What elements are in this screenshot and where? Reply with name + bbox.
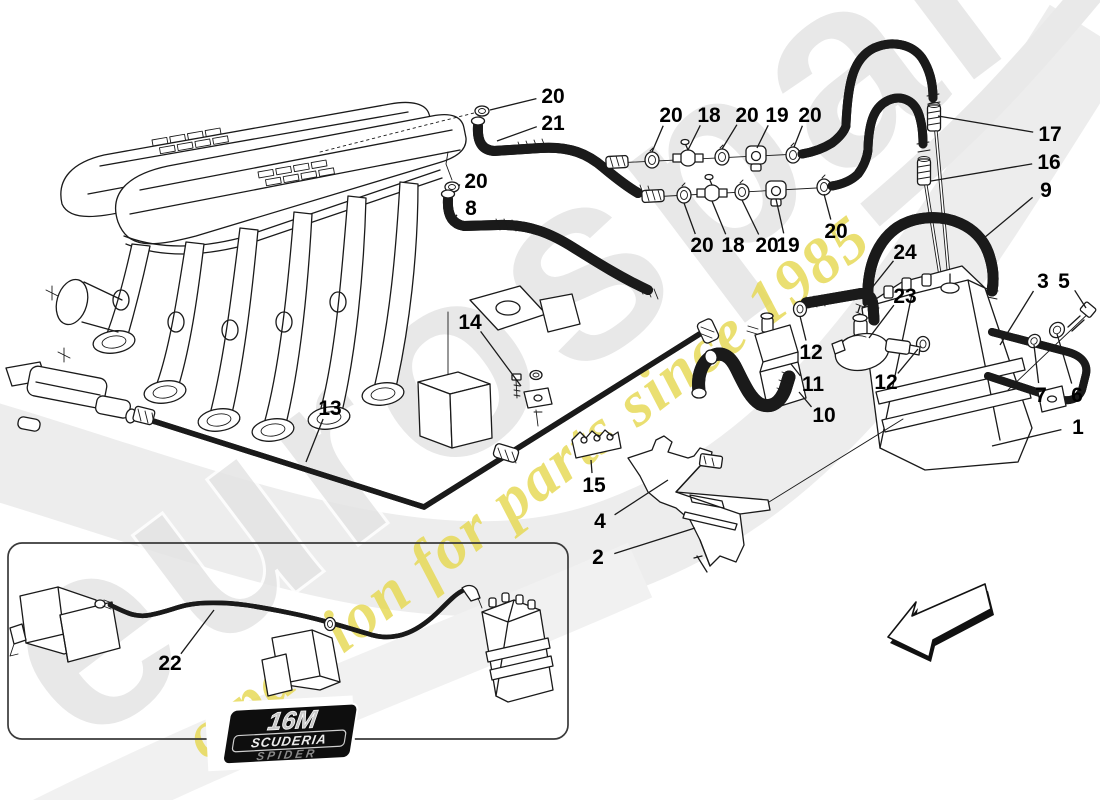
callout-24: 24 xyxy=(893,241,917,264)
callout-12: 12 xyxy=(799,341,822,364)
callout-17: 17 xyxy=(1038,123,1061,146)
actuator-assembly xyxy=(6,362,155,432)
callout-20: 20 xyxy=(541,85,564,108)
leader-line-5 xyxy=(1075,290,1086,308)
callout-18: 18 xyxy=(721,234,745,257)
callout-19: 19 xyxy=(765,104,788,127)
callout-20: 20 xyxy=(690,234,713,257)
callout-11: 11 xyxy=(802,373,825,396)
callout-7: 7 xyxy=(1035,384,1047,407)
callout-5: 5 xyxy=(1058,270,1070,293)
clamp-20-icon xyxy=(475,106,489,116)
callout-21: 21 xyxy=(541,112,565,135)
leader-line-20 xyxy=(459,184,460,186)
callout-14: 14 xyxy=(458,311,482,334)
callout-20: 20 xyxy=(464,170,487,193)
callout-6: 6 xyxy=(1071,384,1083,407)
direction-arrow-icon xyxy=(888,584,994,662)
callout-22: 22 xyxy=(158,652,181,675)
callout-23: 23 xyxy=(893,285,916,308)
leader-line-6 xyxy=(1057,334,1072,384)
callout-13: 13 xyxy=(318,397,341,420)
screw-5-icon xyxy=(1068,301,1097,331)
callout-18: 18 xyxy=(697,104,721,127)
callout-8: 8 xyxy=(465,197,477,220)
callout-15: 15 xyxy=(582,474,606,497)
callout-2: 2 xyxy=(592,546,604,569)
clamp-icon xyxy=(325,618,336,631)
callout-1: 1 xyxy=(1072,416,1084,439)
leader-line-12 xyxy=(800,316,806,341)
screw-axis xyxy=(1008,310,1092,390)
clamp-12-icon xyxy=(794,302,807,317)
inset-ecu-mid xyxy=(262,630,340,696)
callout-20: 20 xyxy=(735,104,758,127)
model-badge: 16M SCUDERIA SPIDER xyxy=(205,695,362,771)
callout-9: 9 xyxy=(1040,179,1052,202)
callout-12: 12 xyxy=(874,371,897,394)
callout-20: 20 xyxy=(755,234,778,257)
callout-16: 16 xyxy=(1037,151,1060,174)
union-16-icon xyxy=(918,157,931,186)
parts-diagram-page: eurospares a passion for parts since 198… xyxy=(0,0,1100,800)
callout-4: 4 xyxy=(594,510,606,533)
callout-20: 20 xyxy=(798,104,821,127)
callout-19: 19 xyxy=(776,234,799,257)
callout-20: 20 xyxy=(659,104,682,127)
washer-6-icon xyxy=(1046,319,1067,340)
callout-20: 20 xyxy=(824,220,847,243)
callout-3: 3 xyxy=(1037,270,1049,293)
evaporative-emissions-parts-diagram: eurospares a passion for parts since 198… xyxy=(0,0,1100,800)
callout-10: 10 xyxy=(812,404,835,427)
